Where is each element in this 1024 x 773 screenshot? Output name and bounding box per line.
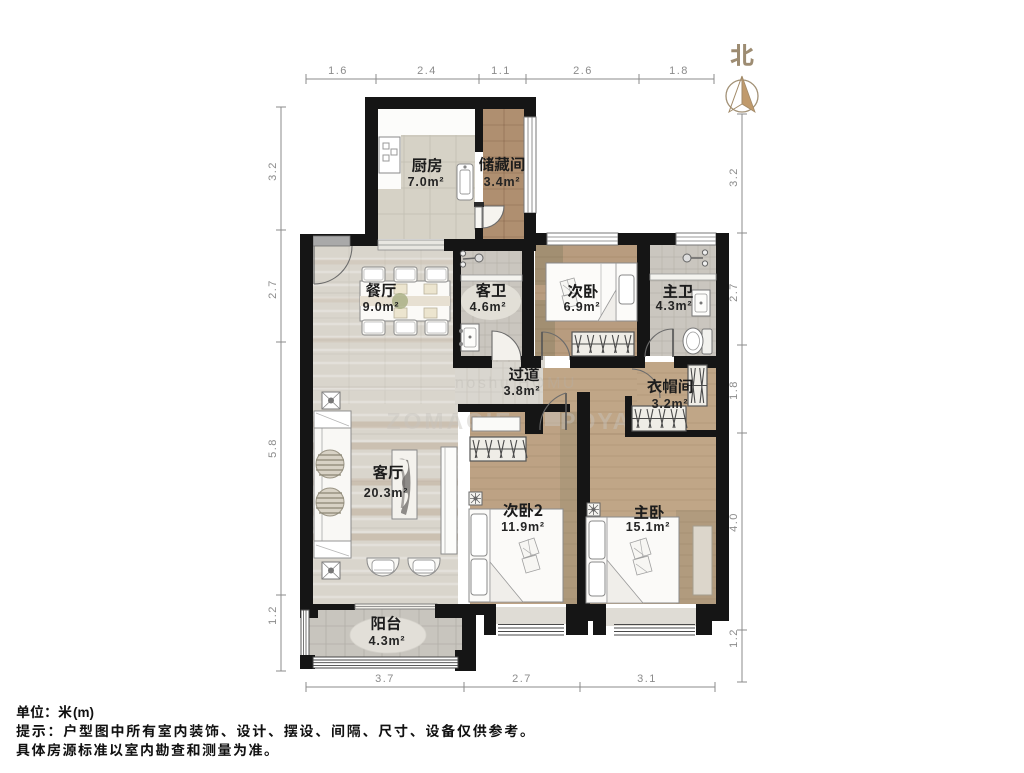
svg-text:(m): (m)	[73, 705, 94, 720]
svg-text:2.6: 2.6	[573, 65, 593, 77]
svg-text:1.1: 1.1	[491, 65, 511, 77]
svg-text:1.2: 1.2	[728, 628, 740, 648]
svg-text:1.2: 1.2	[267, 605, 279, 625]
svg-text:3.1: 3.1	[637, 673, 657, 685]
svg-text:11.9m²: 11.9m²	[501, 520, 545, 534]
svg-text:3.4m²: 3.4m²	[484, 175, 521, 189]
svg-text:4.0: 4.0	[728, 512, 740, 532]
svg-text:1.8: 1.8	[728, 380, 740, 400]
svg-text:15.1m²: 15.1m²	[626, 520, 670, 534]
svg-text:3.7: 3.7	[375, 673, 395, 685]
svg-text:4.3m²: 4.3m²	[656, 299, 693, 313]
svg-text:3.2: 3.2	[728, 167, 740, 187]
svg-text:1.8: 1.8	[669, 65, 689, 77]
svg-text:4.6m²: 4.6m²	[470, 300, 507, 314]
svg-text:20.3m²: 20.3m²	[364, 486, 408, 500]
svg-text:9.0m²: 9.0m²	[363, 300, 400, 314]
svg-text:2.7: 2.7	[267, 279, 279, 299]
svg-text:3.2m²: 3.2m²	[652, 397, 689, 411]
svg-text:3.2: 3.2	[267, 161, 279, 181]
svg-text:5.8: 5.8	[267, 438, 279, 458]
svg-text:3.8m²: 3.8m²	[504, 384, 541, 398]
svg-text:6.9m²: 6.9m²	[564, 300, 601, 314]
svg-text:7.0m²: 7.0m²	[408, 175, 445, 189]
svg-text:4.3m²: 4.3m²	[369, 634, 406, 648]
svg-text:1.6: 1.6	[328, 65, 348, 77]
svg-text:2.7: 2.7	[728, 282, 740, 302]
svg-text:2.4: 2.4	[417, 65, 437, 77]
svg-text:2.7: 2.7	[512, 673, 532, 685]
